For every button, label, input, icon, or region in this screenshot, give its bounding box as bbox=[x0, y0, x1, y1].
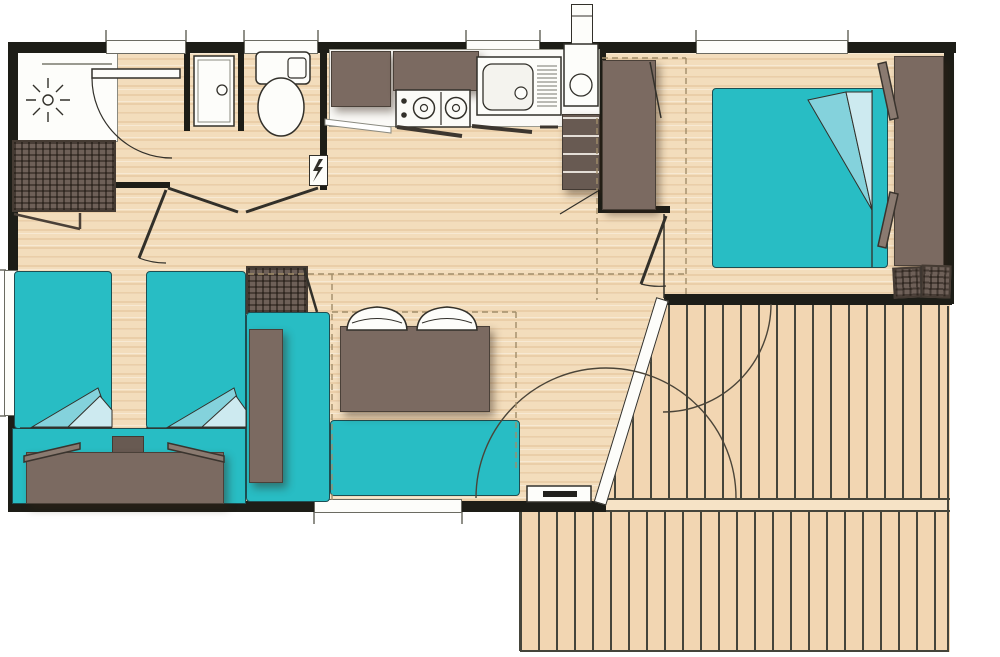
master-bed bbox=[712, 88, 888, 268]
bathroom-storage-unit bbox=[12, 140, 116, 212]
roof-vent bbox=[571, 4, 593, 46]
fridge bbox=[562, 114, 600, 190]
extractor-hood bbox=[393, 51, 479, 91]
twin-headboard bbox=[26, 452, 224, 504]
master-headboard bbox=[894, 56, 944, 266]
floor-plan bbox=[0, 0, 1000, 657]
shower-tray bbox=[16, 52, 118, 142]
twin-bed-left bbox=[14, 271, 112, 429]
deck-lower bbox=[520, 512, 950, 652]
wall-shower-sink bbox=[184, 47, 190, 131]
master-wardrobe bbox=[602, 60, 656, 210]
deck-plank-seam bbox=[604, 498, 950, 512]
bench-table bbox=[249, 329, 283, 483]
window-master-bedroom bbox=[696, 40, 848, 54]
dining-table bbox=[340, 326, 490, 412]
window-bathroom bbox=[106, 40, 186, 54]
window-living-room bbox=[314, 499, 462, 513]
master-cushion-left bbox=[892, 266, 923, 298]
electrical-panel bbox=[309, 155, 328, 186]
kitchen-wall-cabinet bbox=[331, 51, 391, 107]
sofa-horizontal bbox=[330, 420, 520, 496]
twin-storage-unit bbox=[246, 266, 308, 314]
window-wc bbox=[244, 40, 318, 54]
wall-sink-wc bbox=[238, 47, 244, 131]
twin-bed-right bbox=[146, 271, 246, 429]
master-cushion-right bbox=[920, 264, 951, 298]
